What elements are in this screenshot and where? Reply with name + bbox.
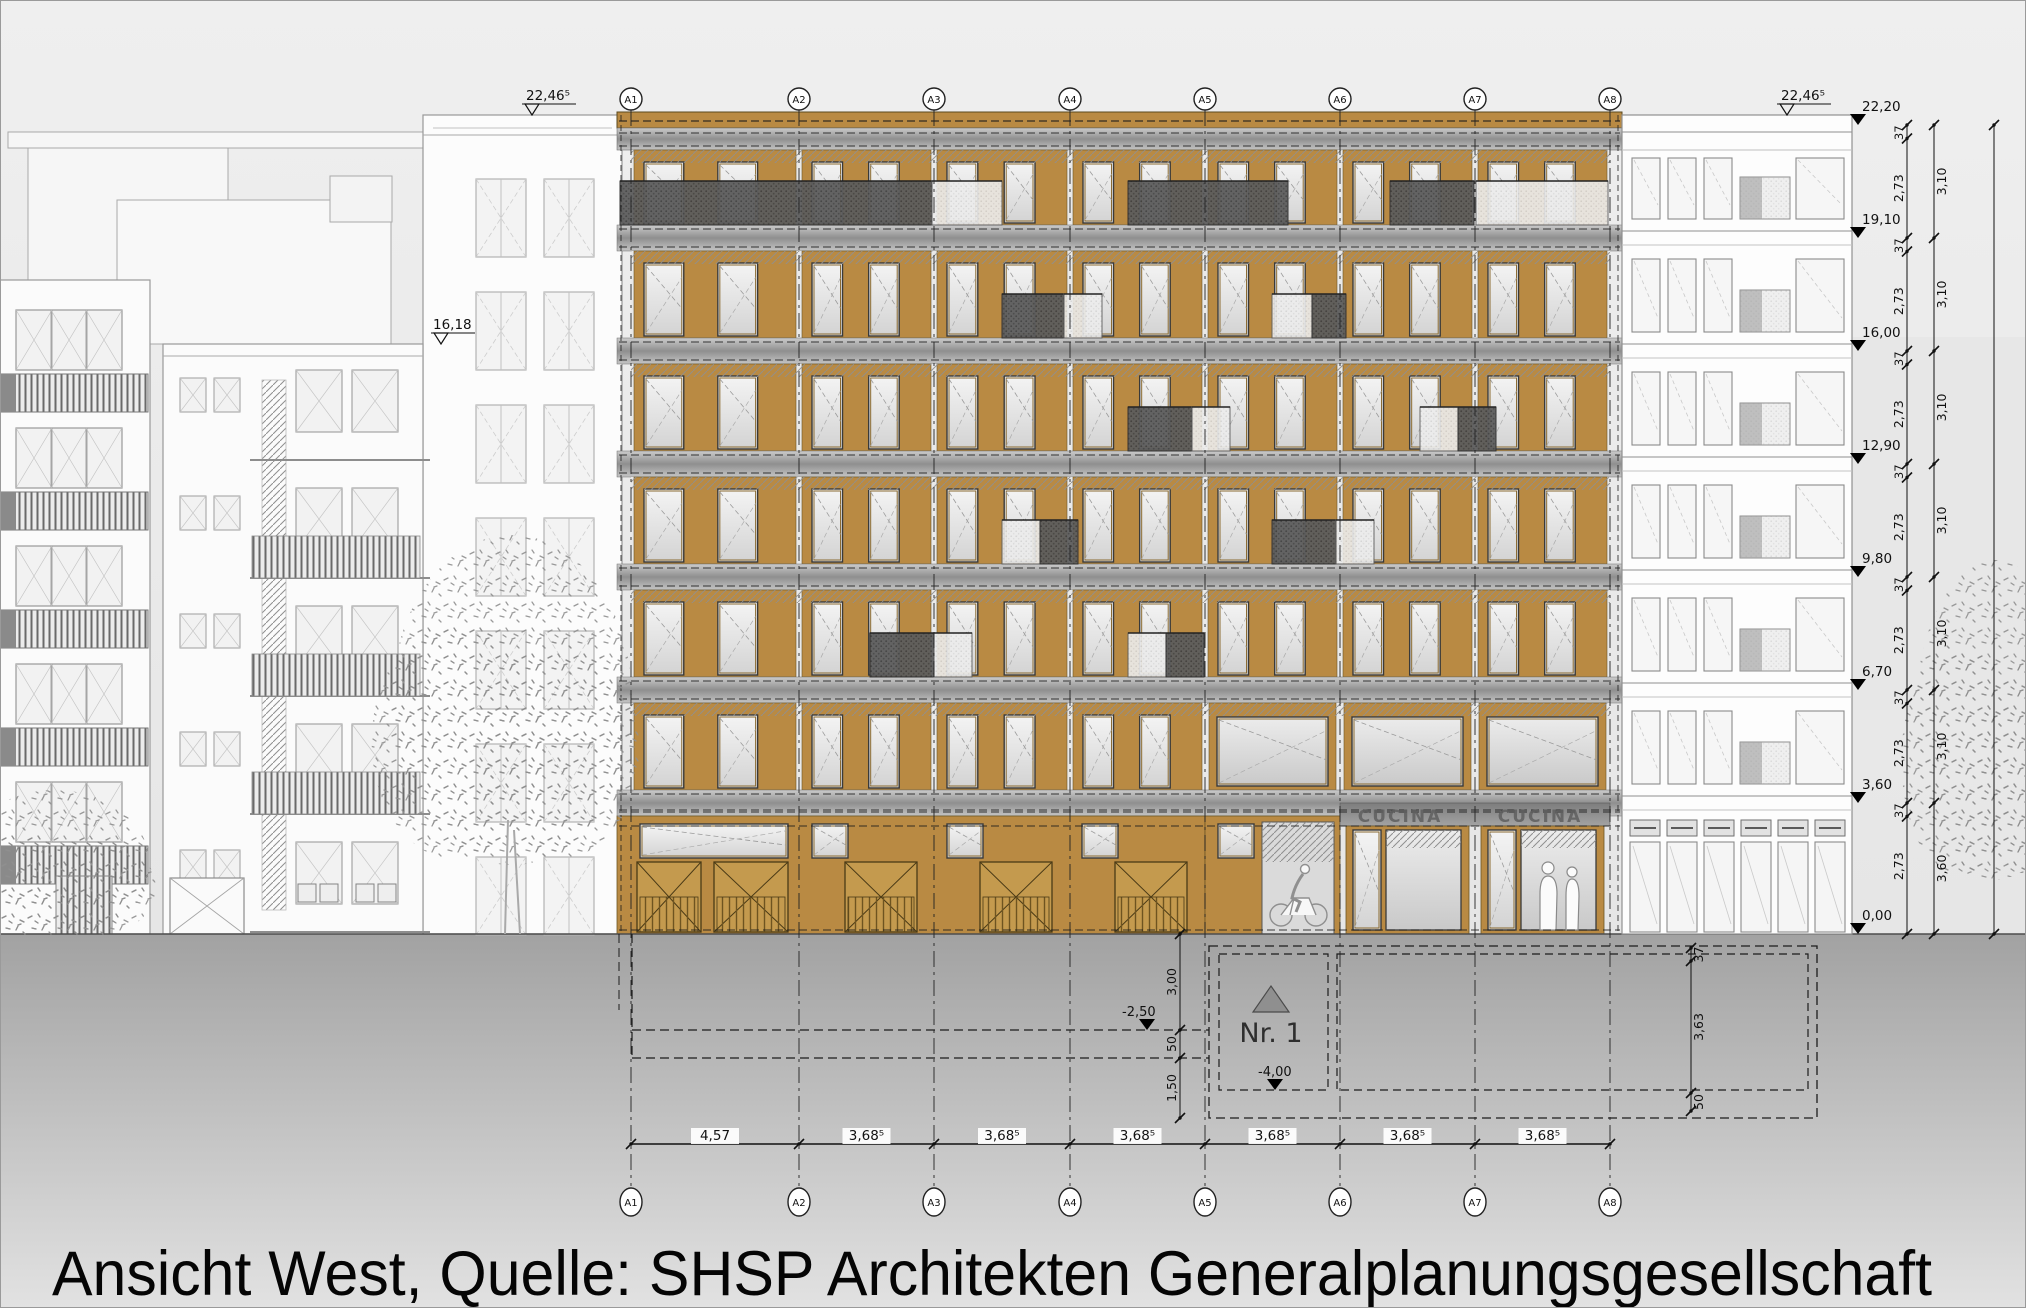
axis-label-top: A4 (1063, 95, 1076, 106)
clear-height-dim: 2,73 (1891, 739, 1906, 767)
axis-label-top: A1 (624, 95, 637, 106)
slab-thickness-dim: 37 (1892, 464, 1906, 479)
right-neighbor-building (1622, 115, 1852, 934)
slab-thickness-dim: 37 (1892, 577, 1906, 592)
elevation-marker-label: 22,20 (1862, 99, 1901, 115)
storey-height-dim: 3,10 (1934, 394, 1949, 422)
axis-spacing-dimension: 3,68⁵ (849, 1128, 884, 1144)
axis-spacing-dimension: 3,68⁵ (1255, 1128, 1290, 1144)
clear-height-dim: 2,73 (1891, 626, 1906, 654)
axis-label-top: A6 (1333, 95, 1346, 106)
axis-label-bottom: A3 (927, 1198, 940, 1209)
axis-label-top: A8 (1603, 95, 1616, 106)
elevation-marker-label: 3,60 (1862, 777, 1892, 793)
drawing-caption: Ansicht West, Quelle: SHSP Architekten G… (52, 1239, 1932, 1308)
elevation-marker-label: 16,00 (1862, 325, 1901, 341)
clear-height-dim: 2,73 (1891, 852, 1906, 880)
roof-marker-left: 22,46⁵ (526, 88, 570, 104)
neighbor-roof-marker-label: 16,18 (433, 317, 472, 333)
axis-label-bottom: A7 (1468, 1198, 1481, 1209)
axis-label-bottom: A4 (1063, 1198, 1076, 1209)
kitchen-sign-label: CUCINA (1498, 807, 1582, 827)
axis-spacing-dimension: 3,68⁵ (984, 1128, 1019, 1144)
axis-label-top: A5 (1198, 95, 1211, 106)
clear-height-dim: 2,73 (1891, 287, 1906, 315)
axis-spacing-dimension: 3,68⁵ (1120, 1128, 1155, 1144)
kitchen-sign-label: CUCINA (1358, 807, 1442, 827)
architectural-drawing-sheet: Nr. 1 A1A1A2A2A3A3A4A4A5A5A6A6A7A7A8A84,… (0, 0, 2026, 1308)
clear-height-dim: 2,73 (1891, 174, 1906, 202)
storey-height-dim: 3,60 (1934, 855, 1949, 883)
basement-right-dim: 37 (1691, 947, 1706, 963)
axis-spacing-dimension: 3,68⁵ (1525, 1128, 1560, 1144)
basement-left-dim: 1,50 (1164, 1074, 1179, 1102)
slab-thickness-dim: 37 (1892, 238, 1906, 253)
basement-right-dim: 3,63 (1691, 1013, 1706, 1041)
elevation-marker-label: 9,80 (1862, 551, 1892, 567)
clear-height-dim: 2,73 (1891, 513, 1906, 541)
storey-height-dim: 3,10 (1934, 281, 1949, 309)
elevation-drawing-canvas: Nr. 1 A1A1A2A2A3A3A4A4A5A5A6A6A7A7A8A84,… (0, 0, 2026, 1308)
slab-thickness-dim: 37 (1892, 351, 1906, 366)
axis-spacing-dimension: 3,68⁵ (1390, 1128, 1425, 1144)
axis-label-bottom: A8 (1603, 1198, 1616, 1209)
slab-thickness-dim: 37 (1892, 690, 1906, 705)
slab-thickness-dim: 37 (1892, 125, 1906, 140)
axis-label-bottom: A6 (1333, 1198, 1346, 1209)
axis-label-bottom: A1 (624, 1198, 637, 1209)
clear-height-dim: 2,73 (1891, 400, 1906, 428)
basement-left-dim: 50 (1164, 1036, 1179, 1052)
storey-height-dim: 3,10 (1934, 733, 1949, 761)
elevation-marker-label: 19,10 (1862, 212, 1901, 228)
axis-label-top: A3 (927, 95, 940, 106)
axis-label-top: A7 (1468, 95, 1481, 106)
unit-number-label: Nr. 1 (1239, 1018, 1302, 1049)
basement-right-dim: 50 (1691, 1094, 1706, 1110)
storey-height-dim: 3,10 (1934, 620, 1949, 648)
axis-spacing-dimension: 4,57 (700, 1128, 730, 1144)
basement-level-marker: -4,00 (1258, 1065, 1292, 1080)
basement-left-dim: 3,00 (1164, 968, 1179, 996)
axis-label-top: A2 (792, 95, 805, 106)
elevation-marker-label: 0,00 (1862, 908, 1892, 924)
slab-thickness-dim: 37 (1892, 803, 1906, 818)
storey-height-dim: 3,10 (1934, 507, 1949, 535)
elevation-marker-label: 6,70 (1862, 664, 1892, 680)
axis-label-bottom: A2 (792, 1198, 805, 1209)
axis-label-bottom: A5 (1198, 1198, 1211, 1209)
roof-marker-right: 22,46⁵ (1781, 88, 1825, 104)
basement-level-marker: -2,50 (1122, 1005, 1156, 1020)
elevation-marker-label: 12,90 (1862, 438, 1901, 454)
storey-height-dim: 3,10 (1934, 168, 1949, 196)
